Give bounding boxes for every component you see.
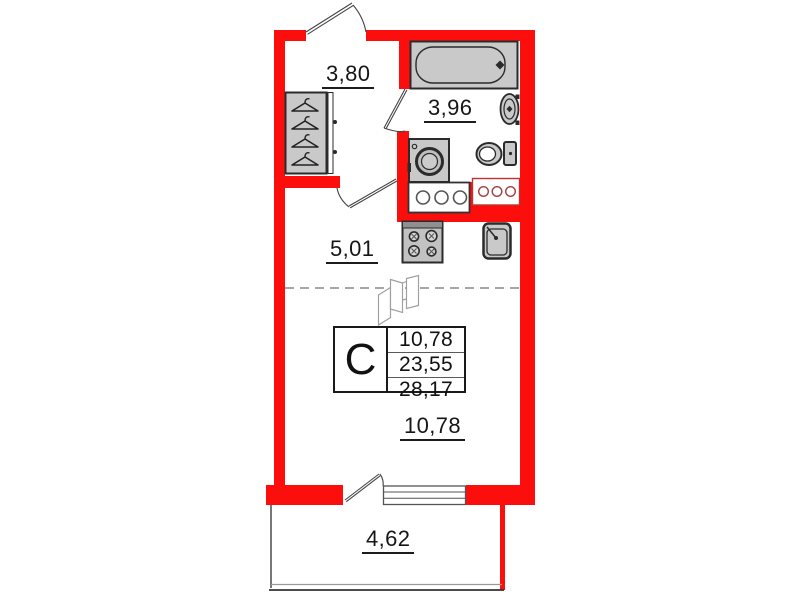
hallway-area-label: 3,80 (322, 62, 374, 89)
entrance-door-swing-icon (306, 3, 366, 34)
kitchen-sink-icon (484, 224, 511, 259)
wardrobe-icon (286, 93, 338, 174)
balcony-door-swing-icon (345, 474, 383, 502)
wall-bottom-left (266, 485, 343, 505)
unit-area-rows: 10,78 23,55 28,17 (388, 328, 464, 391)
kitchen-area-label: 5,01 (326, 237, 378, 264)
washbasin-icon (501, 94, 520, 125)
bathroom-area-label: 3,96 (424, 96, 476, 123)
unit-area-reduced: 23,55 (388, 352, 464, 377)
bathroom-door-swing-icon (384, 89, 407, 132)
unit-type-label: С (335, 328, 388, 391)
vent-shaft-right (473, 179, 520, 206)
wall-right (520, 30, 535, 505)
balcony-window-icon (384, 486, 466, 505)
folding-screen-icon (379, 276, 419, 326)
stove-icon (403, 222, 443, 263)
wall-hallway-bottom (274, 176, 340, 188)
vent-shaft-left (409, 183, 470, 213)
unit-area-total: 28,17 (388, 377, 464, 402)
balcony-right-edge (500, 505, 505, 590)
washing-machine-icon (408, 139, 450, 182)
unit-info-table: С 10,78 23,55 28,17 (333, 326, 466, 393)
wall-bathroom-left-upper (399, 41, 411, 89)
balcony-area-label: 4,62 (362, 527, 414, 554)
wall-top (366, 30, 535, 41)
studio-floor-plan: 3,80 3,96 5,01 10,78 4,62 С 10,78 23,55 … (0, 0, 800, 600)
floor-plan-graphics (0, 0, 800, 600)
room-door-swing-icon (337, 179, 397, 208)
unit-area-living: 10,78 (388, 328, 464, 352)
toilet-icon (477, 142, 517, 165)
wall-bottom-right (466, 485, 535, 505)
bathtub-icon (411, 42, 518, 89)
wall-left (274, 30, 285, 487)
living-area-label: 10,78 (400, 414, 465, 441)
